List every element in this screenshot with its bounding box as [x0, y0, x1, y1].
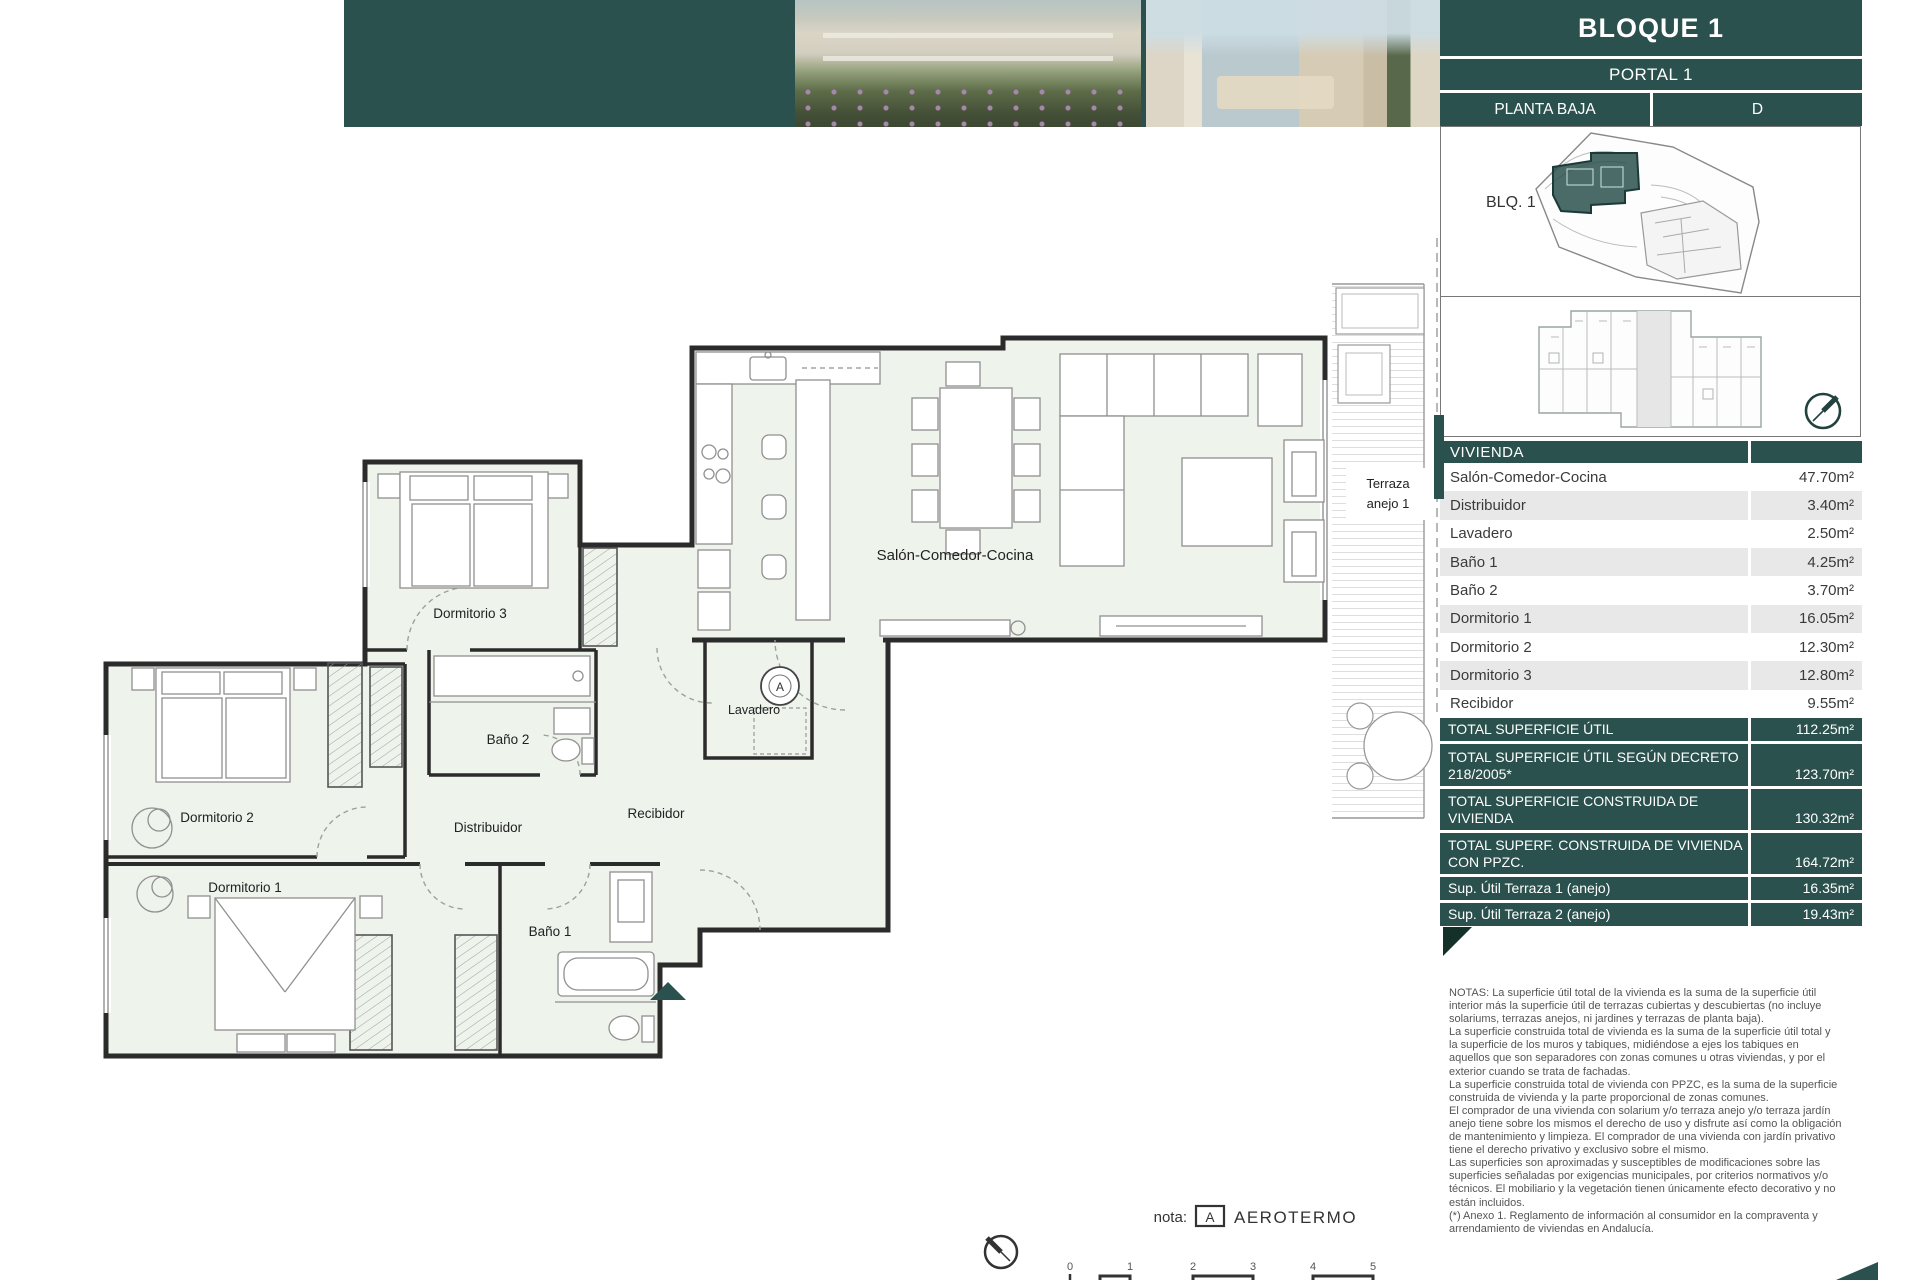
total-row: Sup. Útil Terraza 2 (anejo)19.43m² — [1440, 903, 1862, 926]
total-label: Sup. Útil Terraza 1 (anejo) — [1440, 880, 1744, 901]
svg-text:3: 3 — [1250, 1261, 1256, 1273]
floorplan-sheet: BLOQUE 1 PORTAL 1 PLANTA BAJA D BLQ. 1 — [0, 0, 1920, 1280]
keyplan-drawing — [1441, 297, 1860, 435]
terrace-sofa — [1217, 76, 1335, 109]
label-dormitorio1: Dormitorio 1 — [208, 880, 282, 895]
total-row: TOTAL SUPERFICIE ÚTIL112.25m² — [1440, 718, 1862, 741]
room-area: 16.05m² — [1744, 610, 1862, 627]
label-salon: Salón-Comedor-Cocina — [877, 547, 1034, 564]
aerotermo-unit-label: A — [776, 680, 784, 694]
scale-bar: 0 1 2 3 4 5 — [1067, 1261, 1376, 1280]
room-label: Dormitorio 3 — [1440, 667, 1744, 684]
room-area: 12.30m² — [1744, 639, 1862, 656]
total-label: TOTAL SUPERFICIE ÚTIL — [1440, 721, 1744, 742]
total-label: TOTAL SUPERF. CONSTRUIDA DE VIVIENDA CON… — [1440, 837, 1744, 874]
table-row: Salón-Comedor-Cocina47.70m² — [1440, 463, 1862, 491]
total-value: 112.25m² — [1744, 721, 1862, 741]
svg-text:4: 4 — [1310, 1261, 1316, 1273]
total-value: 164.72m² — [1744, 854, 1862, 874]
room-label: Baño 2 — [1440, 582, 1744, 599]
table-row: Lavadero2.50m² — [1440, 520, 1862, 548]
keyplan-thumbnail — [1440, 297, 1861, 437]
label-dormitorio2: Dormitorio 2 — [180, 810, 254, 825]
total-row: TOTAL SUPERFICIE ÚTIL SEGÚN DECRETO 218/… — [1440, 744, 1862, 786]
total-value: 130.32m² — [1744, 810, 1862, 830]
total-label: TOTAL SUPERFICIE CONSTRUIDA DE VIVIENDA — [1440, 793, 1744, 830]
garden-hedge — [795, 84, 1141, 127]
svg-text:5: 5 — [1370, 1261, 1376, 1273]
total-value: 19.43m² — [1744, 906, 1862, 926]
balcony-slab — [823, 33, 1114, 38]
room-label: Dormitorio 2 — [1440, 639, 1744, 656]
room-label: Dormitorio 1 — [1440, 610, 1744, 627]
table-row: Distribuidor3.40m² — [1440, 491, 1862, 519]
room-label: Salón-Comedor-Cocina — [1440, 469, 1744, 486]
room-table: Salón-Comedor-Cocina47.70m² Distribuidor… — [1440, 463, 1862, 718]
label-lavadero: Lavadero — [728, 703, 780, 717]
notes-paragraph: NOTAS: La superficie útil total de la vi… — [1449, 987, 1861, 1236]
label-distribuidor: Distribuidor — [454, 820, 523, 835]
siteplan-drawing: BLQ. 1 — [1441, 127, 1860, 296]
room-label: Distribuidor — [1440, 497, 1744, 514]
floor-label: PLANTA BAJA — [1440, 93, 1650, 126]
terraza-label: Terraza — [1366, 476, 1410, 491]
table-header: VIVIENDA — [1440, 441, 1862, 463]
room-label: Lavadero — [1440, 525, 1744, 542]
table-row: Dormitorio 212.30m² — [1440, 633, 1862, 661]
room-area: 9.55m² — [1744, 695, 1862, 712]
aerotermo-key-letter: A — [1205, 1210, 1214, 1225]
siteplan-thumbnail: BLQ. 1 — [1440, 126, 1861, 297]
unit-letter: D — [1653, 93, 1862, 126]
room-area: 3.40m² — [1744, 497, 1862, 514]
nota-label: nota: — [1154, 1209, 1187, 1226]
page-corner-marker — [1836, 1262, 1878, 1280]
blq-label: BLQ. 1 — [1486, 194, 1536, 211]
table-row: Baño 23.70m² — [1440, 576, 1862, 604]
exterior-photo — [795, 0, 1141, 127]
compass-icon — [1806, 394, 1840, 428]
label-recibidor: Recibidor — [627, 806, 685, 821]
svg-text:anejo 1: anejo 1 — [1367, 496, 1410, 511]
terraza-anejo: Terraza anejo 1 — [1332, 238, 1444, 818]
room-area: 3.70m² — [1744, 582, 1862, 599]
balcony-slab — [823, 56, 1114, 61]
total-row: TOTAL SUPERFICIE CONSTRUIDA DE VIVIENDA1… — [1440, 789, 1862, 830]
total-row: TOTAL SUPERF. CONSTRUIDA DE VIVIENDA CON… — [1440, 833, 1862, 874]
label-bano1: Baño 1 — [529, 924, 572, 939]
block-title: BLOQUE 1 — [1440, 0, 1862, 56]
total-label: TOTAL SUPERFICIE ÚTIL SEGÚN DECRETO 218/… — [1440, 749, 1744, 786]
portal-title: PORTAL 1 — [1440, 59, 1862, 90]
table-row: Dormitorio 312.80m² — [1440, 661, 1862, 689]
room-area: 47.70m² — [1744, 469, 1862, 486]
compass-icon — [985, 1236, 1017, 1268]
plan-footer: nota: A AEROTERMO 0 1 2 3 4 5 — [985, 1206, 1376, 1280]
label-bano2: Baño 2 — [487, 732, 530, 747]
room-area: 12.80m² — [1744, 667, 1862, 684]
table-column-divider — [1748, 441, 1751, 926]
aerotermo-text: AEROTERMO — [1234, 1208, 1357, 1227]
room-label: Baño 1 — [1440, 554, 1744, 571]
svg-text:0: 0 — [1067, 1261, 1073, 1273]
total-row: Sup. Útil Terraza 1 (anejo)16.35m² — [1440, 877, 1862, 900]
total-label: Sup. Útil Terraza 2 (anejo) — [1440, 906, 1744, 927]
svg-text:1: 1 — [1127, 1261, 1133, 1273]
svg-text:2: 2 — [1190, 1261, 1196, 1273]
table-row: Recibidor9.55m² — [1440, 690, 1862, 718]
table-row: Baño 14.25m² — [1440, 548, 1862, 576]
total-value: 123.70m² — [1744, 766, 1862, 786]
bedroom3-furniture — [378, 472, 568, 588]
section-marker — [1434, 415, 1444, 499]
room-area: 4.25m² — [1744, 554, 1862, 571]
table-row: Dormitorio 116.05m² — [1440, 605, 1862, 633]
room-area: 2.50m² — [1744, 525, 1862, 542]
total-value: 16.35m² — [1744, 880, 1862, 900]
floor-plan: Terraza anejo 1 — [60, 230, 1450, 1280]
room-label: Recibidor — [1440, 695, 1744, 712]
terrace-photo — [1146, 0, 1440, 127]
label-dormitorio3: Dormitorio 3 — [433, 606, 507, 621]
